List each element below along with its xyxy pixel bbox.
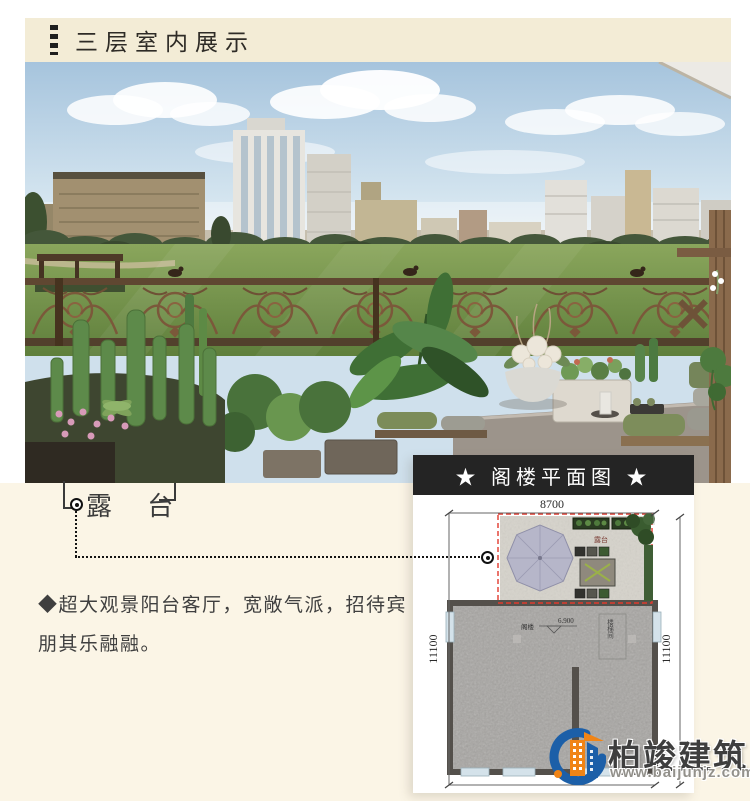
terrace-annotation-label: 露 台 (86, 486, 187, 523)
brand-watermark: 柏竣建筑 www.baijunjz.com (546, 722, 750, 798)
page-title: 三层室内展示 (75, 23, 255, 57)
dashed-accent-icon (50, 25, 58, 55)
umbrella-icon (507, 525, 573, 591)
dim-height-right-label: 11100 (659, 634, 673, 663)
promo-page: 三层室内展示 (0, 0, 750, 801)
section-header: 三层室内展示 (25, 18, 731, 62)
plan-level-label: 6.900 (558, 617, 574, 625)
leader-start-dot (70, 498, 83, 511)
description-text: ◆超大观景阳台客厅，宽敞气派，招待宾朋其乐融融。 (38, 586, 422, 664)
leader-end-dot (481, 551, 494, 564)
floorplan-title-bar: ★ 阁楼平面图 ★ (413, 455, 694, 495)
terrace-photo-svg (25, 62, 731, 483)
dim-width-label: 8700 (540, 497, 564, 511)
plan-room-label: 阁楼 (521, 622, 535, 631)
dim-height-left-label: 11100 (426, 634, 440, 663)
plan-furniture (575, 547, 615, 598)
leader-line-vertical (75, 511, 77, 557)
terrace-photo (25, 62, 731, 483)
baijun-logo-icon (546, 728, 606, 790)
floorplan-title: ★ 阁楼平面图 ★ (455, 461, 651, 490)
plan-terrace-label: 露台 (594, 535, 608, 544)
brand-website: www.baijunjz.com (610, 764, 750, 781)
leader-line-horizontal (75, 556, 484, 558)
